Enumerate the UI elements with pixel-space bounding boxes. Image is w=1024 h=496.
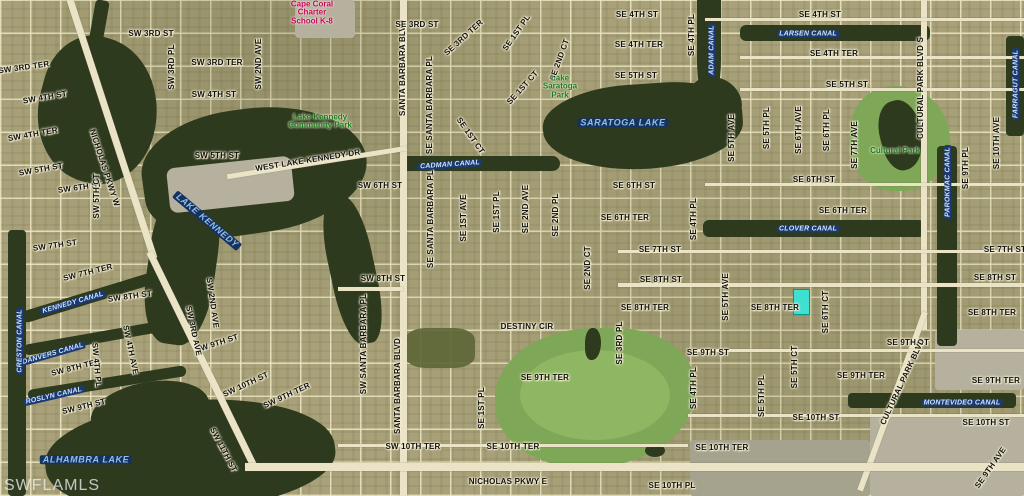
street-label-se-6th-st: SE 6TH ST: [793, 176, 835, 184]
lake-kennedy-east-lobe: [315, 192, 390, 348]
street-label-se-4th-pl: SE 4TH PL: [688, 14, 696, 56]
street-label-se-1st-ct: SE 1ST CT: [454, 116, 485, 155]
road-se-10th-st[interactable]: [688, 414, 1024, 417]
street-label-se-9th-st: SE 9TH ST: [687, 349, 729, 357]
street-label-sw-8th-st: SW 8TH ST: [361, 275, 405, 283]
canal-label-larsen-canal: LARSEN CANAL: [777, 30, 839, 37]
street-label-sw-7th-ter: SW 7TH TER: [63, 263, 114, 283]
canal-label-parokmac-canal: PAROKMAC CANAL: [944, 145, 951, 219]
street-label-se-3rd-pl: SE 3RD PL: [616, 321, 624, 364]
road-se-5th-st[interactable]: [740, 88, 1024, 91]
road-se-4th-ter[interactable]: [740, 56, 1024, 59]
street-label-destiny-cir: DESTINY CIR: [501, 323, 554, 331]
road-se-9th-st[interactable]: [688, 349, 1024, 352]
street-label-sw-4th-st: SW 4TH ST: [192, 91, 236, 99]
street-label-sw-3rd-st: SW 3RD ST: [128, 30, 173, 38]
watermark: SWFLAMLS: [4, 477, 100, 495]
street-label-se-10th-ter: SE 10TH TER: [696, 444, 749, 452]
street-label-se-8th-ter: SE 8TH TER: [621, 304, 669, 312]
canal-label-montevideo-canal: MONTEVIDEO CANAL: [922, 399, 1003, 406]
street-label-santa-barbara-blvd: SANTA BARBARA BLVD: [399, 20, 407, 116]
street-label-se-8th-ter: SE 8TH TER: [968, 309, 1016, 317]
canal-label-farragut-canal: FARRAGUT CANAL: [1012, 48, 1019, 120]
park-label-cultural-park: Cultural Park: [870, 147, 920, 155]
street-label-se-9th-ter: SE 9TH TER: [521, 374, 569, 382]
street-label-se-4th-pl: SE 4TH PL: [690, 367, 698, 409]
street-label-se-santa-barbara-pl: SE SANTA BARBARA PL: [426, 56, 434, 154]
street-label-se-2nd-ave: SE 2ND AVE: [522, 185, 530, 234]
street-label-se-3rd-ter: SE 3RD TER: [443, 18, 485, 57]
street-label-se-5th-ave: SE 5TH AVE: [728, 114, 736, 162]
street-label-se-1st-ave: SE 1ST AVE: [460, 194, 468, 241]
street-label-se-10th-st: SE 10TH ST: [793, 414, 840, 422]
street-label-se-4th-pl: SE 4TH PL: [690, 198, 698, 240]
street-label-sw-7th-st: SW 7TH ST: [32, 239, 77, 253]
street-label-santa-barbara-blvd: SANTA BARBARA BLVD: [394, 338, 402, 434]
street-label-sw-3rd-pl: SW 3RD PL: [168, 44, 176, 89]
street-label-se-6th-ter: SE 6TH TER: [819, 207, 867, 215]
street-label-se-7th-ave: SE 7TH AVE: [851, 121, 859, 169]
street-label-se-1st-pl: SE 1ST PL: [478, 387, 486, 429]
street-label-sw-5th-st: SW 5TH ST: [195, 152, 239, 160]
street-label-se-1st-ct: SE 1ST CT: [506, 69, 541, 106]
park-label-lake-saratoga-park: Lake Saratoga Park: [543, 74, 577, 99]
street-label-se-10th-st: SE 10TH ST: [963, 419, 1010, 427]
street-label-cultural-park-blvd-s: CULTURAL PARK BLVD S: [917, 37, 925, 139]
canal-label-clover-canal: CLOVER CANAL: [777, 225, 839, 232]
canal-label-adam-canal: ADAM CANAL: [708, 23, 715, 76]
street-label-se-6th-ave: SE 6TH AVE: [795, 106, 803, 154]
street-label-se-7th-st: SE 7TH ST: [984, 246, 1024, 254]
street-label-sw-santa-barbara-pl: SW SANTA BARBARA PL: [360, 294, 368, 394]
lake-label-alhambra-lake: ALHAMBRA LAKE: [40, 455, 132, 464]
street-label-se-10th-ave: SE 10TH AVE: [993, 117, 1001, 169]
street-label-se-7th-st: SE 7TH ST: [639, 246, 681, 254]
street-label-se-5th-st: SE 5TH ST: [615, 72, 657, 80]
street-label-se-6th-st: SE 6TH ST: [613, 182, 655, 190]
satellite-map[interactable]: SW 3RD STSW 3RD TERSW 3RD TERSW 3RD PLSW…: [0, 0, 1024, 496]
canal-label-creston-canal: CRESTON CANAL: [16, 307, 23, 374]
street-label-se-santa-barbara-pl: SE SANTA BARBARA PL: [427, 170, 435, 268]
street-label-se-6th-ct: SE 6TH CT: [822, 291, 830, 334]
street-label-sw-3rd-ter: SW 3RD TER: [191, 59, 242, 67]
street-label-sw-5th-ct: SW 5TH CT: [93, 174, 101, 219]
street-label-se-10th-ter: SE 10TH TER: [487, 443, 540, 451]
street-label-se-2nd-ct: SE 2ND CT: [584, 246, 592, 290]
park-label-lake-kennedy-community-park: Lake Kennedy Community Park: [288, 114, 352, 131]
street-label-se-5th-ct: SE 5TH CT: [791, 346, 799, 389]
street-label-se-10th-pl: SE 10TH PL: [649, 482, 696, 490]
street-label-se-1st-pl: SE 1ST PL: [493, 191, 501, 233]
street-label-sw-3rd-ter: SW 3RD TER: [0, 60, 50, 75]
street-label-se-6th-ter: SE 6TH TER: [601, 214, 649, 222]
street-label-se-5th-pl: SE 5TH PL: [758, 375, 766, 417]
street-label-se-9th-pl: SE 9TH PL: [962, 147, 970, 189]
street-label-sw-10th-ter: SW 10TH TER: [385, 443, 440, 451]
lake-label-saratoga-lake: SARATOGA LAKE: [577, 118, 668, 127]
street-label-se-5th-st: SE 5TH ST: [826, 81, 868, 89]
road-se-4th-st[interactable]: [705, 18, 1024, 21]
street-label-se-6th-pl: SE 6TH PL: [823, 109, 831, 151]
golf-course-fairway: [520, 350, 670, 440]
street-label-se-4th-ter: SE 4TH TER: [810, 50, 858, 58]
street-label-se-9th-ter: SE 9TH TER: [837, 372, 885, 380]
street-label-sw-10th-st: SW 10TH ST: [222, 371, 270, 399]
street-label-se-4th-ter: SE 4TH TER: [615, 41, 663, 49]
street-label-sw-6th-st: SW 6TH ST: [358, 182, 402, 190]
road-sw-8th-st[interactable]: [338, 287, 403, 291]
street-label-nicholas-pkwy-e: NICHOLAS PKWY E: [469, 478, 547, 486]
street-label-sw-5th-st: SW 5TH ST: [18, 162, 63, 178]
street-label-se-8th-st: SE 8TH ST: [640, 276, 682, 284]
street-label-se-1st-pl: SE 1ST PL: [502, 13, 533, 52]
street-label-se-5th-pl: SE 5TH PL: [763, 107, 771, 149]
school-label-cape-coral-charter-school-k-8: Cape Coral Charter School K-8: [291, 0, 333, 25]
street-label-se-3rd-st: SE 3RD ST: [395, 21, 438, 29]
street-label-se-4th-st: SE 4TH ST: [799, 11, 841, 19]
street-label-sw-2nd-ave: SW 2ND AVE: [255, 39, 263, 90]
street-label-se-5th-ave: SE 5TH AVE: [722, 273, 730, 321]
street-label-se-9th-ter: SE 9TH TER: [972, 377, 1020, 385]
road-nicholas-pkwy-e[interactable]: [245, 463, 1024, 471]
street-label-se-2nd-pl: SE 2ND PL: [552, 193, 560, 236]
road-se-6th-st[interactable]: [705, 183, 1024, 186]
street-label-se-8th-st: SE 8TH ST: [974, 274, 1016, 282]
street-label-se-4th-st: SE 4TH ST: [616, 11, 658, 19]
street-label-sw-9th-ter: SW 9TH TER: [262, 382, 311, 411]
street-label-se-8th-ter: SE 8TH TER: [751, 304, 799, 312]
wooded-lot: [405, 328, 475, 368]
